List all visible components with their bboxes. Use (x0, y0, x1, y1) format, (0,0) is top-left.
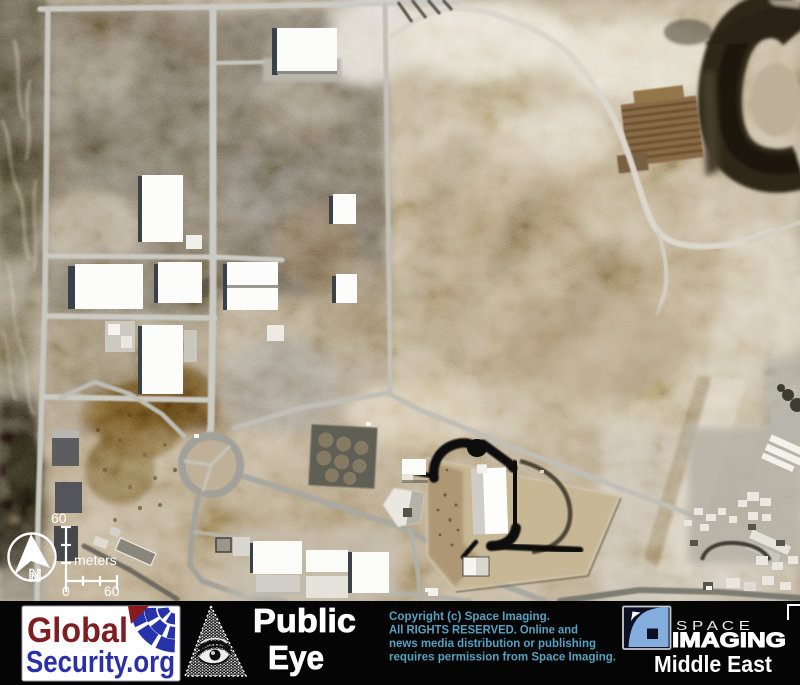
svg-text:requires permission from Space: requires permission from Space Imaging. (389, 652, 616, 664)
svg-text:Copyright (c) Space Imaging.: Copyright (c) Space Imaging. (389, 611, 550, 623)
svg-text:news media distribution or pub: news media distribution or publishing (389, 638, 596, 650)
svg-text:Public: Public (253, 602, 356, 639)
svg-text:0: 0 (62, 583, 70, 599)
svg-text:All RIGHTS RESERVED. Online an: All RIGHTS RESERVED. Online and (389, 625, 578, 637)
svg-text:Eye: Eye (268, 639, 324, 676)
svg-text:N: N (29, 566, 41, 585)
svg-text:IMAGING: IMAGING (672, 629, 786, 652)
svg-text:60: 60 (51, 510, 67, 526)
svg-text:meters: meters (74, 552, 117, 568)
svg-text:Security.org: Security.org (26, 644, 175, 679)
svg-text:60: 60 (104, 583, 120, 599)
svg-text:Middle East: Middle East (654, 651, 772, 677)
